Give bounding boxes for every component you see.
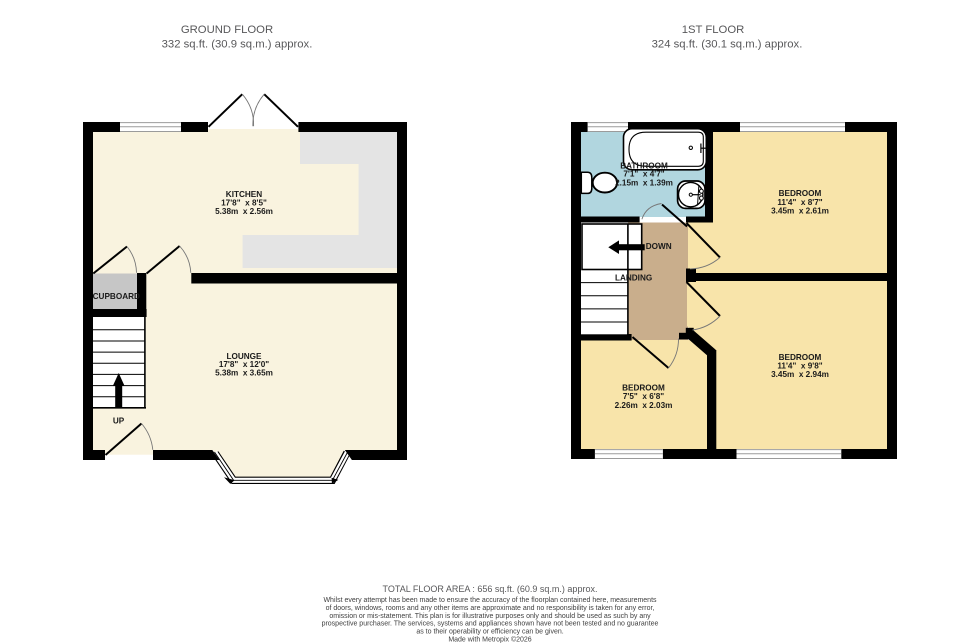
svg-text:2.26m x 2.03m: 2.26m x 2.03m xyxy=(615,401,673,410)
svg-text:11'4" x 9'8": 11'4" x 9'8" xyxy=(777,361,822,370)
svg-text:7'1" x 4'7": 7'1" x 4'7" xyxy=(623,170,664,179)
svg-text:omission or mis-statement. Thi: omission or mis-statement. This plan is … xyxy=(329,613,651,620)
svg-text:CUPBOARD: CUPBOARD xyxy=(93,292,140,301)
svg-text:UP: UP xyxy=(113,416,125,425)
svg-text:11'4" x 8'7": 11'4" x 8'7" xyxy=(777,198,822,207)
svg-text:5.38m x 3.65m: 5.38m x 3.65m xyxy=(215,369,273,378)
svg-text:DOWN: DOWN xyxy=(646,242,672,251)
svg-text:GROUND FLOOR: GROUND FLOOR xyxy=(181,24,273,36)
svg-text:LANDING: LANDING xyxy=(615,273,652,282)
svg-text:TOTAL FLOOR AREA : 656 sq.ft.: TOTAL FLOOR AREA : 656 sq.ft. (60.9 sq.m… xyxy=(383,584,598,594)
svg-text:7'5" x 6'8": 7'5" x 6'8" xyxy=(623,392,664,401)
svg-text:324 sq.ft. (30.1 sq.m.) approx: 324 sq.ft. (30.1 sq.m.) approx. xyxy=(652,39,803,51)
svg-text:as to their operability or eff: as to their operability or efficiency ca… xyxy=(416,629,563,636)
svg-text:1ST FLOOR: 1ST FLOOR xyxy=(682,24,745,36)
svg-text:of doors, windows, rooms and a: of doors, windows, rooms and any other i… xyxy=(326,605,655,612)
svg-text:5.38m x 2.56m: 5.38m x 2.56m xyxy=(215,207,273,216)
svg-text:2.15m x 1.39m: 2.15m x 1.39m xyxy=(615,178,673,187)
svg-text:BEDROOM: BEDROOM xyxy=(622,383,665,392)
svg-text:332 sq.ft. (30.9 sq.m.) approx: 332 sq.ft. (30.9 sq.m.) approx. xyxy=(162,39,313,51)
svg-text:3.45m x 2.61m: 3.45m x 2.61m xyxy=(771,207,829,216)
svg-text:Whilst every attempt has been: Whilst every attempt has been made to en… xyxy=(323,597,657,604)
svg-text:3.45m x 2.94m: 3.45m x 2.94m xyxy=(771,370,829,379)
svg-text:Made with Metropix ©2026: Made with Metropix ©2026 xyxy=(448,636,531,644)
svg-text:prospective purchaser. The ser: prospective purchaser. The services, sys… xyxy=(322,621,659,628)
